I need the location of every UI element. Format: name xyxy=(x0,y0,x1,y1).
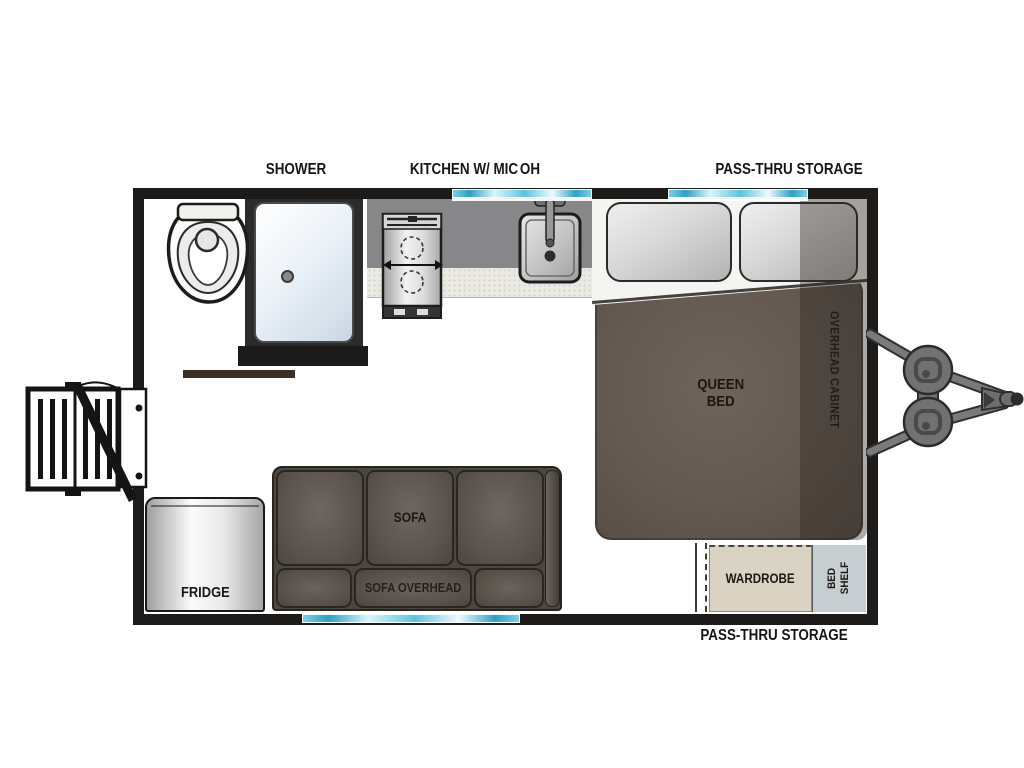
overhead-cabinet-label: OVERHEAD CABINET xyxy=(828,311,840,428)
floorplan-canvas: QUEEN BED OVERHEAD CABINET SOFA SOFA OVE… xyxy=(0,0,1024,768)
wardrobe-label: WARDROBE xyxy=(726,571,795,586)
bed-shelf-label: BED SHELF xyxy=(826,562,852,594)
window xyxy=(302,614,520,623)
fridge-label: FRIDGE xyxy=(181,585,230,602)
sofa-seat-cushion xyxy=(276,568,352,608)
sofa-back-cushion xyxy=(276,470,364,566)
fridge: FRIDGE xyxy=(145,497,265,612)
window xyxy=(668,189,808,198)
partition-wall xyxy=(695,543,697,612)
label-shower: SHOWER xyxy=(266,161,326,179)
sofa-back-cushion xyxy=(456,470,544,566)
queen-bed-label: QUEEN BED xyxy=(698,377,745,411)
sofa-armrest xyxy=(545,470,560,607)
entry-door-icon xyxy=(18,372,160,508)
sofa-label: SOFA xyxy=(394,510,427,526)
bathroom-wall xyxy=(238,346,368,366)
label-pass-thru-bottom: PASS-THRU STORAGE xyxy=(700,627,847,645)
shower-drain-icon xyxy=(281,270,294,283)
shower-pan xyxy=(254,202,354,343)
pillow xyxy=(606,202,732,282)
sofa-overhead-label: SOFA OVERHEAD xyxy=(365,581,461,596)
window xyxy=(452,189,592,198)
sofa: SOFA SOFA OVERHEAD xyxy=(272,466,562,611)
overhead-cabinet-overlay: OVERHEAD CABINET xyxy=(800,199,867,540)
sofa-seat-cushion: SOFA OVERHEAD xyxy=(354,568,472,608)
bathroom-half-wall xyxy=(183,370,295,378)
toilet-icon xyxy=(160,198,256,310)
wardrobe: WARDROBE xyxy=(709,545,812,612)
sink-icon xyxy=(515,194,585,290)
tow-hitch-icon xyxy=(866,318,1024,488)
partition-wall-dashed xyxy=(705,543,707,612)
shower-stall-icon xyxy=(245,199,363,352)
stove-icon xyxy=(381,206,445,320)
label-pass-thru-top: PASS-THRU STORAGE xyxy=(715,161,862,179)
label-oh: OH xyxy=(520,161,540,179)
sofa-back-cushion: SOFA xyxy=(366,470,454,566)
bed-shelf: BED SHELF xyxy=(812,545,866,612)
sofa-seat-cushion xyxy=(474,568,544,608)
label-kitchen: KITCHEN W/ MIC xyxy=(410,161,518,179)
